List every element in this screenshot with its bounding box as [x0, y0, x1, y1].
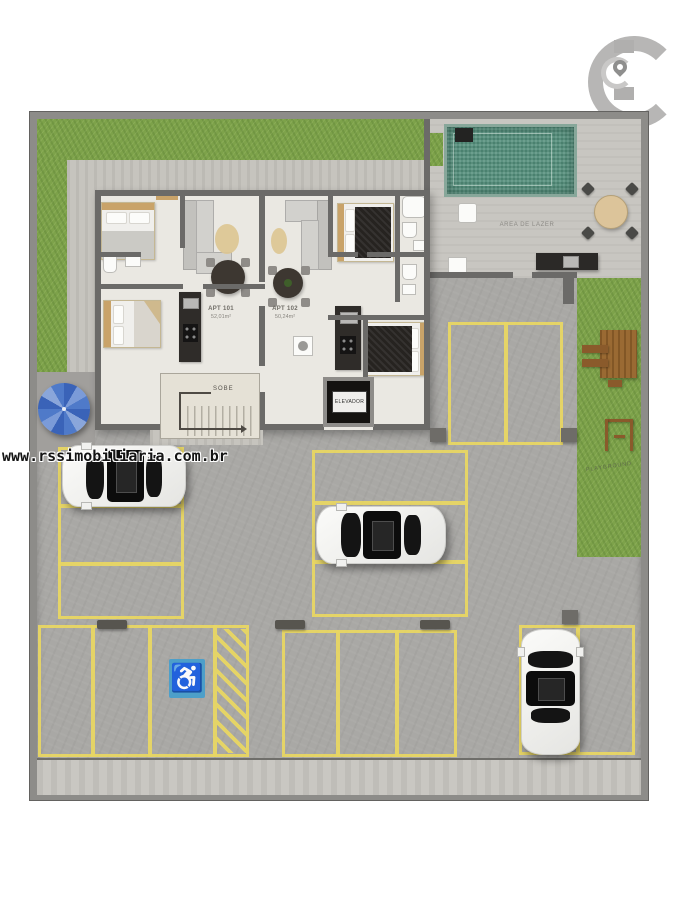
pillar [561, 428, 577, 442]
dining-chair [241, 288, 250, 297]
apartment-102-area: 50,24m² [257, 314, 313, 321]
stairs-label: SOBE [213, 386, 234, 392]
parking-line [91, 625, 95, 757]
bed-pillow [106, 212, 127, 224]
apartment-101-name: APT 101 [193, 306, 249, 314]
car-mirror [336, 559, 347, 567]
stair-path [179, 392, 181, 430]
car-sunroof [538, 678, 565, 701]
building: APT 101 52,01m² APT 102 50,24m² [95, 190, 430, 430]
car-mirror [336, 503, 347, 511]
grass-pool-side [430, 133, 443, 166]
toilet [402, 222, 417, 238]
wall [258, 424, 324, 430]
swing-seat [614, 435, 625, 438]
bed [363, 322, 427, 376]
car-roof [363, 511, 401, 559]
grass-right-strip [577, 278, 641, 557]
grill [455, 128, 473, 142]
wheel-stop [275, 620, 305, 629]
car [521, 629, 580, 755]
rug [215, 224, 239, 254]
grass-left-strip [37, 160, 67, 372]
sink [402, 284, 416, 295]
car-roof [526, 671, 575, 706]
no-parking-hatch [217, 629, 246, 753]
toilet [402, 264, 417, 280]
dining-chair [206, 288, 215, 297]
elevator: ELEVADOR [323, 377, 374, 427]
wheel-stop [97, 620, 127, 629]
wheel-stop [420, 620, 450, 629]
stair-path [179, 392, 211, 394]
apartment-102-name: APT 102 [257, 306, 313, 314]
sink [125, 256, 141, 267]
car [316, 506, 446, 564]
car-mirror [576, 647, 584, 656]
bathtub [402, 196, 426, 218]
sidewalk [37, 758, 641, 795]
toilet [103, 256, 117, 273]
wheelchair-icon: ♿ [170, 665, 204, 692]
parking-line [58, 562, 184, 566]
bed-pillow [113, 305, 124, 324]
brand-logo [586, 33, 664, 109]
apartment-102-label: APT 102 50,24m² [257, 306, 313, 320]
sofa [196, 200, 214, 254]
parking-line [504, 322, 508, 445]
pillar [430, 428, 446, 442]
wall [180, 190, 185, 248]
car-windshield [341, 513, 360, 557]
pillar [562, 610, 578, 624]
sofa [301, 220, 319, 270]
wall [95, 284, 183, 289]
car-rear-window [404, 515, 421, 554]
logo-cap-top [614, 40, 634, 53]
stair-path [179, 428, 241, 430]
bed-pillow [129, 212, 150, 224]
wall [259, 306, 265, 366]
bed-duvet [355, 207, 391, 258]
washer [293, 336, 313, 356]
wall [328, 252, 358, 257]
wall [363, 320, 368, 378]
stove [183, 324, 198, 342]
bed-pillow [113, 326, 124, 345]
page: www.rssimobiliaria.com.br AREA DE LAZER [0, 0, 675, 900]
wall [203, 284, 265, 289]
parking-line [336, 630, 340, 757]
wall [95, 190, 101, 430]
bed-duvet [368, 326, 412, 372]
umbrella [38, 383, 90, 435]
wall [373, 424, 430, 430]
wall [424, 190, 430, 430]
bed-headboard [104, 301, 111, 347]
car-windshield [531, 708, 571, 723]
wall [259, 190, 265, 282]
stairs: SOBE [160, 373, 260, 439]
wall [395, 190, 400, 252]
apartment-101-label: APT 101 52,01m² [193, 306, 249, 320]
kitchen-counter [179, 292, 201, 362]
bar-sink [563, 256, 579, 268]
leisure-table [594, 195, 628, 229]
leisure-wall [420, 272, 513, 278]
handicap-parking-sign: ♿ [169, 659, 205, 698]
playground-bench [582, 345, 608, 353]
leisure-area-label: AREA DE LAZER [477, 222, 577, 228]
playground-bench [582, 359, 608, 367]
leisure-wall-stub [563, 278, 574, 304]
bed-pillow [345, 209, 355, 232]
bed-headboard [102, 203, 154, 210]
dining-chair [241, 258, 250, 267]
swing-post [605, 419, 608, 451]
stair-arrow-icon [241, 425, 247, 433]
swing-top-bar [605, 419, 633, 422]
stove [340, 336, 356, 354]
sun-lounger [458, 203, 477, 223]
car-sunroof [116, 461, 137, 494]
swing-post [630, 419, 633, 451]
watermark-url: www.rssimobiliaria.com.br [2, 447, 228, 465]
parking-line [395, 630, 399, 757]
parking-space-group [282, 630, 457, 757]
car-rear-window [528, 651, 572, 668]
leisure-cabinet [448, 257, 467, 273]
wall [95, 252, 141, 257]
walkway-left [67, 160, 95, 372]
wall [328, 190, 333, 252]
wall [395, 257, 400, 302]
car-mirror [81, 502, 92, 510]
car-mirror [517, 647, 525, 656]
parking-line [148, 625, 152, 757]
washer-door [298, 341, 308, 351]
bed-blanket-fold [144, 301, 160, 324]
car-sunroof [372, 521, 394, 552]
grass-top-strip [37, 119, 443, 160]
table-plant [284, 279, 292, 287]
wall [328, 315, 430, 320]
playground-deck [600, 330, 637, 378]
bed [103, 300, 161, 348]
playground-ladder [608, 380, 622, 387]
dining-chair [301, 266, 310, 275]
sofa-chaise [285, 200, 319, 222]
apartment-101-area: 52,01m² [193, 314, 249, 321]
elevator-label: ELEVADOR [332, 391, 367, 413]
rug [271, 228, 287, 254]
